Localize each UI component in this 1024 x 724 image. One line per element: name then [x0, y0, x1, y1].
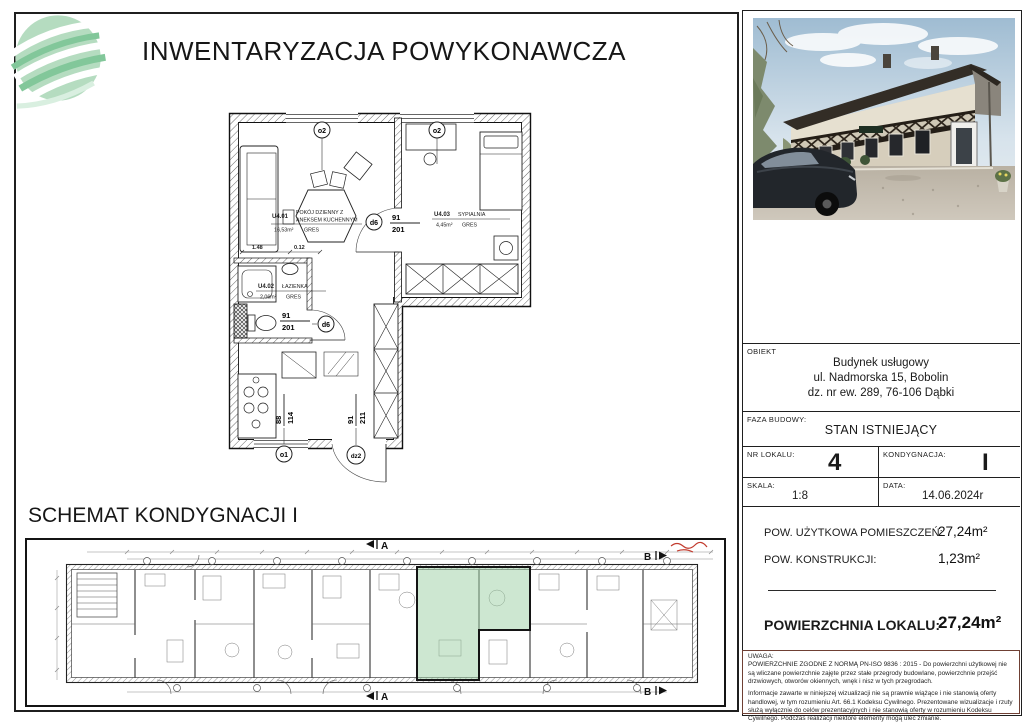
nr-lokalu-value: 4 [828, 449, 841, 477]
pow-konstrukcji-label: POW. KONSTRUKCJI: [764, 554, 876, 566]
svg-text:88: 88 [274, 416, 283, 424]
svg-text:201: 201 [282, 323, 295, 332]
skala-value: 1:8 [792, 490, 808, 502]
schematic-drawing: A A B B [27, 540, 719, 700]
staircase [77, 573, 117, 617]
svg-text:POKÓJ DZIENNY Z: POKÓJ DZIENNY Z [296, 209, 344, 216]
svg-text:16,53m²: 16,53m² [274, 228, 294, 234]
logo-globe-icon [4, 4, 112, 112]
svg-text:o1: o1 [280, 452, 288, 459]
bedroom-wardrobe [406, 264, 518, 294]
nr-lokalu-label: NR LOKALU: [747, 450, 795, 459]
section-marker-b-bottom: B [644, 686, 667, 698]
column-divider-2 [878, 478, 879, 507]
svg-text:U4.02: U4.02 [258, 284, 275, 290]
svg-text:91: 91 [282, 311, 290, 320]
powierzchnia-lokalu-value: 27,24m² [938, 613, 1001, 633]
red-annotation [671, 542, 707, 552]
sofa [240, 146, 278, 252]
uwaga-label: UWAGA: [748, 653, 774, 660]
svg-text:2,06m²: 2,06m² [260, 295, 277, 301]
marker-window-o1: 88 114 o1 [274, 394, 295, 462]
svg-text:ŁAZIENKA: ŁAZIENKA [282, 284, 308, 290]
svg-text:U4.03: U4.03 [434, 212, 451, 218]
svg-text:A: A [381, 692, 388, 700]
dining-table [283, 171, 356, 242]
row-skala-data: SKALA: 1:8 DATA: 14.06.2024r [742, 477, 1020, 506]
hall-wardrobe [374, 304, 398, 438]
pow-konstrukcji-value: 1,23m² [938, 551, 980, 566]
svg-text:91: 91 [392, 213, 400, 222]
svg-text:U4.01: U4.01 [272, 214, 289, 220]
armchair [344, 152, 372, 180]
highlighted-unit-4 [417, 567, 530, 680]
obiekt-line1: Budynek usługowy [742, 357, 1020, 369]
section-marker-a-bottom: A [366, 691, 388, 700]
entrance-door [951, 122, 977, 170]
powierzchnia-lokalu-label: POWIERZCHNIA LOKALU: [764, 617, 940, 633]
row-areas: POW. UŻYTKOWA POMIESZCZEŃ: 27,24m² POW. … [742, 506, 1020, 650]
svg-text:B: B [644, 687, 651, 698]
marker-bubbles [144, 558, 671, 692]
skala-label: SKALA: [747, 481, 775, 490]
svg-text:0.12: 0.12 [294, 245, 305, 251]
room-label-bedroom: U4.03 SYPIALNIA 4,45m² GRES [432, 212, 510, 229]
interior-wall-divider [356, 118, 402, 302]
kondygnacja-value: I [982, 449, 989, 477]
furniture-hints [145, 574, 677, 664]
kitchen-cabinet [282, 352, 316, 378]
marker-window-o2-left: o2 [314, 122, 330, 170]
building-photo [753, 18, 1015, 220]
building-outline [67, 565, 698, 683]
marker-door-d6-bath: 91 201 d6 [280, 311, 334, 332]
svg-text:114: 114 [286, 411, 295, 424]
svg-text:d6: d6 [322, 322, 330, 329]
svg-text:GRES: GRES [462, 223, 477, 229]
kitchen-counter [238, 374, 276, 438]
svg-text:1.48: 1.48 [252, 245, 263, 251]
dimension-lines [55, 550, 713, 692]
svg-text:SYPIALNIA: SYPIALNIA [458, 212, 486, 218]
obiekt-line3: dz. nr ew. 289, 76-106 Dąbki [742, 387, 1020, 399]
faza-value: STAN ISTNIEJĄCY [742, 423, 1020, 437]
data-value: 14.06.2024r [922, 490, 983, 502]
svg-text:GRES: GRES [286, 295, 301, 301]
svg-text:201: 201 [392, 225, 405, 234]
marker-door-dz2: 91 211 dz2 [346, 394, 367, 464]
signboard [859, 126, 883, 133]
svg-text:211: 211 [358, 412, 367, 424]
bed [480, 132, 522, 210]
svg-text:91: 91 [346, 416, 355, 424]
sheet: INWENTARYZACJA POWYKONAWCZA [0, 0, 1024, 724]
dimension-chain: 1.48 0.12 [240, 245, 322, 254]
marker-door-d6-living: d6 91 201 [366, 213, 420, 234]
obiekt-line2: ul. Nadmorska 15, Bobolin [742, 372, 1020, 384]
row-lokal-kondygnacja: NR LOKALU: 4 KONDYGNACJA: I [742, 446, 1020, 477]
page-title: INWENTARYZACJA POWYKONAWCZA [142, 36, 626, 67]
svg-text:d6: d6 [370, 220, 378, 227]
summary-divider [768, 590, 996, 591]
schematic-box: A A B B [25, 538, 726, 707]
row-faza: FAZA BUDOWY: STAN ISTNIEJĄCY [742, 411, 1020, 446]
svg-text:dz2: dz2 [351, 453, 362, 460]
svg-text:ANEKSEM KUCHENNYM: ANEKSEM KUCHENNYM [296, 218, 358, 224]
uwaga-paragraph-1: POWIERZCHNIE ZGODNE Z NORMĄ PN-ISO 9836 … [748, 661, 1014, 686]
bedroom-washbasin [494, 236, 518, 260]
washbasin [282, 264, 298, 275]
pow-uzytkowa-value: 27,24m² [938, 524, 988, 539]
entry-mat [324, 352, 358, 376]
svg-text:B: B [644, 552, 651, 563]
kondygnacja-label: KONDYGNACJA: [883, 450, 946, 459]
installation-shaft [234, 304, 247, 338]
svg-text:A: A [381, 541, 388, 552]
svg-text:o2: o2 [433, 128, 441, 135]
uwaga-paragraph-2: Informacje zawarte w niniejszej wizualiz… [748, 690, 1014, 723]
pow-uzytkowa-label: POW. UŻYTKOWA POMIESZCZEŃ: [764, 527, 943, 539]
data-label: DATA: [883, 481, 905, 490]
row-obiekt: OBIEKT Budynek usługowy ul. Nadmorska 15… [742, 343, 1020, 411]
obiekt-label: OBIEKT [747, 347, 776, 356]
svg-text:4,45m²: 4,45m² [436, 223, 453, 229]
toilet [248, 315, 276, 331]
floor-plan-drawing: o2 o2 d6 91 201 91 201 d6 88 114 [228, 112, 532, 484]
section-marker-a-top: A [366, 540, 388, 552]
svg-text:o2: o2 [318, 128, 326, 135]
schematic-heading: SCHEMAT KONDYGNACJI I [28, 504, 298, 528]
uwaga-note: UWAGA: POWIERZCHNIE ZGODNE Z NORMĄ PN-IS… [742, 650, 1020, 714]
svg-text:GRES: GRES [304, 228, 319, 234]
column-divider [878, 447, 879, 478]
